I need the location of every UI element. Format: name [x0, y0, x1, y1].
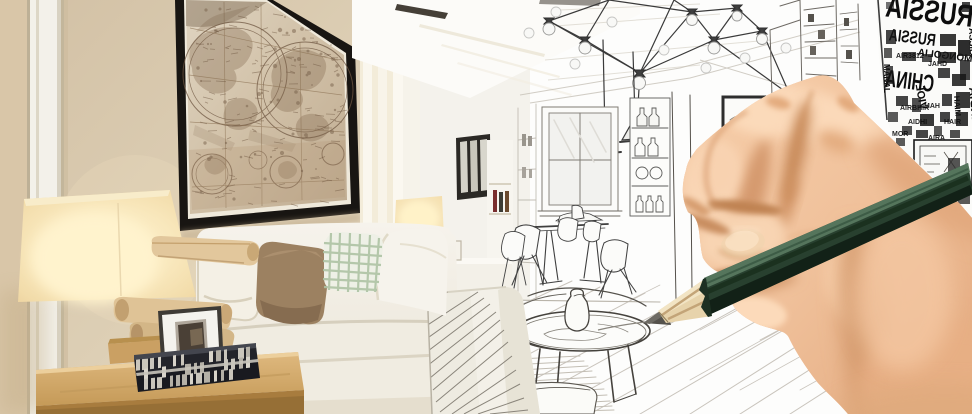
svg-text:AIR3812: AIR3812 [896, 53, 924, 60]
svg-text:JAHD: JAHD [928, 61, 947, 68]
svg-text:MAH: MAH [924, 103, 940, 110]
svg-text:MOR: MOR [892, 131, 908, 138]
svg-text:HAIR: HAIR [944, 119, 961, 126]
svg-text:AIDHI: AIDHI [908, 119, 927, 126]
